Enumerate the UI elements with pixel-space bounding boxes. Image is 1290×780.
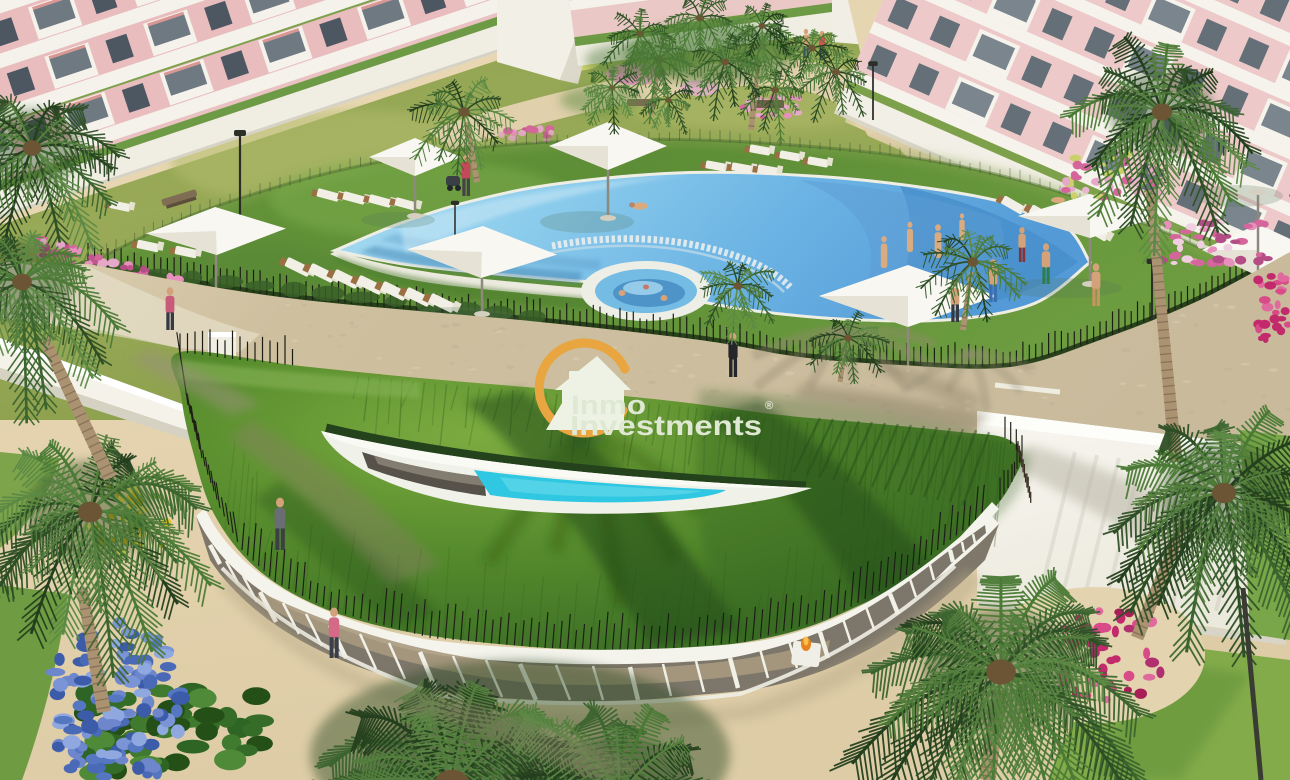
svg-text:Investments: Investments bbox=[570, 410, 762, 441]
svg-text:®: ® bbox=[765, 400, 773, 412]
